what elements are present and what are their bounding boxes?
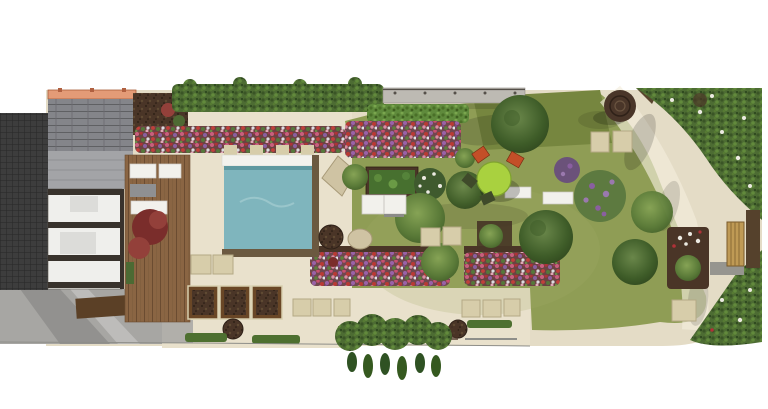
canopy-texture bbox=[504, 110, 520, 126]
veg-plant bbox=[389, 180, 398, 189]
boulder bbox=[348, 229, 372, 249]
deck-cushion bbox=[130, 164, 156, 178]
roof-beam bbox=[48, 255, 122, 261]
flowering-tree bbox=[574, 170, 626, 222]
pool-water-shade bbox=[224, 166, 312, 170]
white-bloom bbox=[738, 318, 742, 322]
stepping-stone bbox=[313, 299, 331, 316]
deck-table bbox=[130, 184, 156, 197]
shrub bbox=[424, 322, 452, 350]
white-bloom bbox=[748, 184, 752, 188]
white-bloom bbox=[670, 98, 674, 102]
tree-over-path bbox=[631, 191, 673, 233]
purple-bloom bbox=[609, 179, 614, 184]
shrub-sprig bbox=[363, 354, 373, 378]
small-red-plant bbox=[328, 257, 338, 267]
white-bloom bbox=[418, 184, 421, 187]
fence-post bbox=[424, 92, 427, 95]
tree-canopy bbox=[519, 210, 573, 264]
purple-bloom bbox=[603, 191, 609, 197]
white-bloom bbox=[688, 232, 692, 236]
house-side-wall bbox=[120, 189, 124, 289]
tree-canopy bbox=[421, 243, 459, 281]
pool-rim-bottom bbox=[222, 249, 319, 257]
deck-cushion bbox=[159, 164, 181, 178]
white-bloom bbox=[678, 236, 682, 240]
sun-lounger bbox=[543, 192, 573, 204]
white-bloom bbox=[696, 239, 700, 243]
bed-shrub bbox=[479, 224, 503, 248]
flower-border-top-right bbox=[345, 121, 461, 158]
red-bloom bbox=[698, 230, 701, 233]
round-dining-table bbox=[477, 162, 511, 196]
shrub-sprig bbox=[415, 353, 425, 373]
white-bloom bbox=[684, 242, 688, 246]
garden-plan-svg bbox=[0, 0, 768, 409]
red-bloom bbox=[710, 328, 714, 332]
shrub-sprig bbox=[380, 353, 390, 375]
white-bloom bbox=[748, 288, 752, 292]
stump-top bbox=[604, 90, 636, 122]
neighboring-roof bbox=[0, 113, 48, 290]
white-bloom bbox=[426, 190, 430, 194]
fence-post bbox=[484, 92, 487, 95]
shrub-sprig bbox=[397, 356, 407, 380]
fence-post bbox=[394, 92, 397, 95]
pool-water bbox=[224, 166, 312, 250]
clipped-low-hedge bbox=[185, 333, 227, 342]
hedge-gap bbox=[693, 93, 707, 107]
stepping-stone bbox=[462, 300, 480, 317]
purple-bloom bbox=[595, 205, 601, 211]
fence-post bbox=[454, 92, 457, 95]
house bbox=[48, 88, 136, 289]
white-bloom bbox=[432, 172, 436, 176]
interior-furniture bbox=[60, 232, 96, 254]
wall-post bbox=[90, 88, 94, 92]
stepping-stone bbox=[443, 227, 461, 245]
wall-post bbox=[122, 88, 126, 92]
edge-line bbox=[465, 338, 517, 340]
shrub-sprig bbox=[347, 352, 357, 372]
white-bloom bbox=[710, 94, 714, 98]
fence-post bbox=[514, 92, 517, 95]
interior-furniture bbox=[70, 196, 98, 212]
lounger-frame bbox=[384, 214, 404, 217]
planter-soil bbox=[224, 290, 246, 315]
purple-bloom bbox=[602, 212, 607, 217]
tree-canopy bbox=[491, 95, 549, 153]
hedge-bump bbox=[348, 77, 362, 91]
wall-post bbox=[58, 88, 62, 92]
red-maple-shrub bbox=[128, 237, 150, 259]
bed-plant bbox=[173, 115, 185, 127]
clipped-low-hedge bbox=[467, 320, 512, 328]
soil-strip bbox=[746, 210, 760, 268]
stepping-stone bbox=[483, 300, 501, 317]
flowering-shrub bbox=[554, 157, 580, 183]
garden-plan-image bbox=[0, 0, 768, 409]
hedge-bump bbox=[293, 79, 307, 93]
stepping-stone bbox=[672, 300, 696, 321]
deck-planter bbox=[126, 262, 134, 284]
small-shrub bbox=[455, 148, 475, 168]
low-bright-hedge bbox=[367, 104, 469, 123]
white-bloom bbox=[422, 176, 426, 180]
tree-canopy bbox=[612, 239, 658, 285]
stepping-stone bbox=[191, 255, 211, 274]
veg-plant bbox=[374, 174, 382, 182]
veg-plant bbox=[402, 172, 410, 180]
stepping-stone bbox=[293, 299, 311, 316]
purple-bloom bbox=[567, 163, 572, 168]
stepping-stone bbox=[591, 132, 609, 152]
purple-bloom bbox=[583, 197, 588, 202]
red-maple-highlight bbox=[149, 211, 167, 229]
white-bloom bbox=[736, 156, 740, 160]
roof-beam bbox=[48, 222, 122, 228]
clipped-low-hedge bbox=[252, 335, 300, 344]
purple-bloom bbox=[561, 172, 565, 176]
canopy-texture bbox=[530, 220, 546, 236]
purple-bloom bbox=[589, 183, 595, 189]
planter-soil bbox=[256, 290, 278, 315]
shrub-sprig bbox=[431, 355, 441, 377]
red-bloom bbox=[672, 244, 676, 248]
stepping-stone bbox=[334, 299, 350, 316]
planter-soil bbox=[192, 290, 214, 315]
roof-beam bbox=[48, 282, 122, 288]
roof-beam bbox=[48, 189, 122, 195]
stepping-stone bbox=[213, 255, 233, 274]
timber-deck bbox=[125, 155, 190, 322]
pool-rim-right bbox=[312, 155, 319, 257]
outdoor-table bbox=[75, 295, 126, 318]
white-bloom bbox=[720, 130, 724, 134]
round-shrub bbox=[675, 255, 701, 281]
stepping-stone bbox=[504, 299, 520, 316]
white-bloom bbox=[720, 298, 724, 302]
stepping-stone bbox=[421, 228, 440, 246]
white-bloom bbox=[438, 184, 442, 188]
white-bloom bbox=[698, 110, 702, 114]
tiled-roof bbox=[48, 99, 133, 151]
white-bloom bbox=[742, 116, 746, 120]
stepping-stone bbox=[613, 131, 632, 152]
swimming-pool bbox=[222, 145, 319, 257]
hedge-bump bbox=[183, 79, 197, 93]
hedge-bump bbox=[233, 77, 247, 91]
pool-edge-band bbox=[222, 155, 317, 166]
planting-pot bbox=[319, 225, 343, 249]
round-shrub bbox=[342, 164, 368, 190]
